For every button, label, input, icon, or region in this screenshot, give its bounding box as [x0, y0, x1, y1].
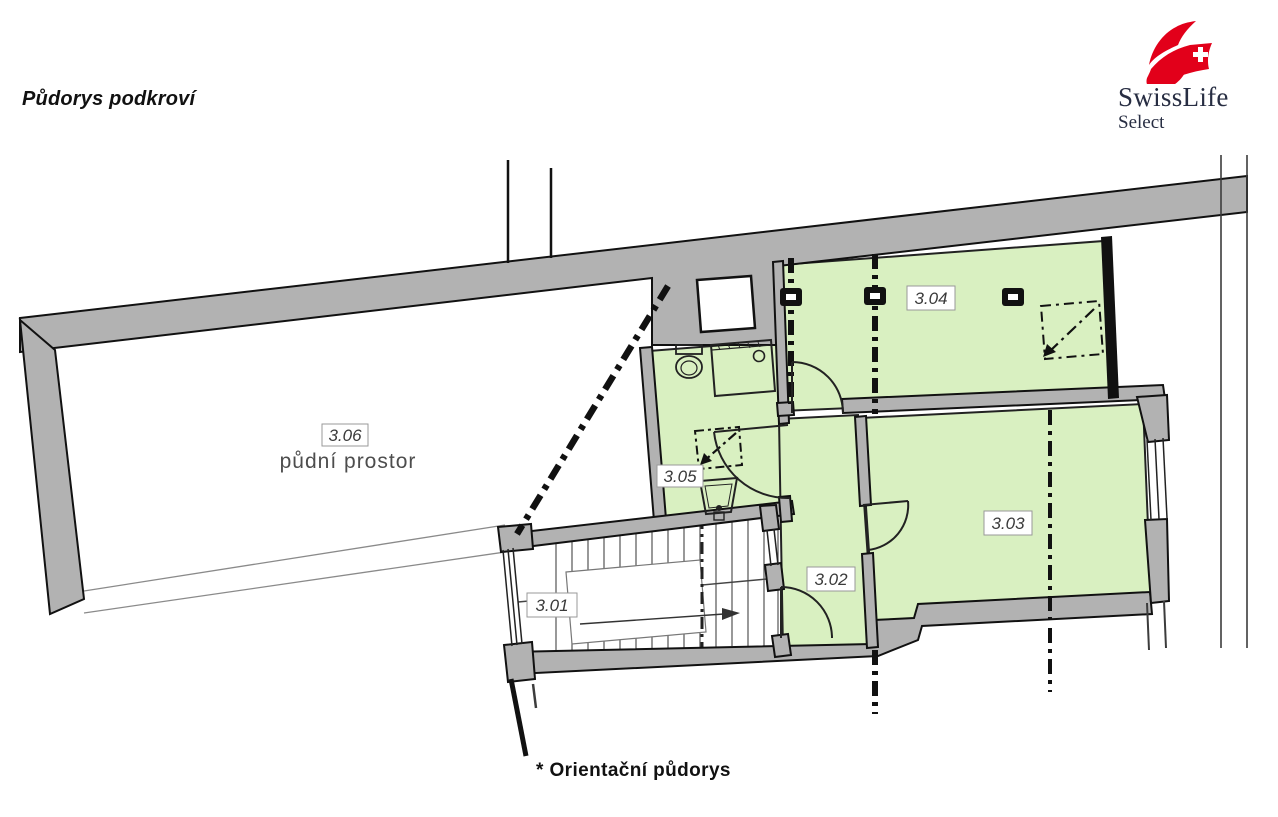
room-label-3.01: 3.01	[527, 593, 577, 617]
column-marker	[780, 288, 802, 306]
room-3.04-area	[778, 241, 1110, 411]
attic-knee-wall-lines	[84, 525, 512, 613]
orientation-note: * Orientační půdorys	[536, 760, 731, 782]
window-staircase-right-sidelight	[767, 529, 778, 566]
wall-staircase-left-top	[498, 524, 533, 552]
stair-direction-arrow-icon	[722, 608, 740, 620]
room-label-3.05: 3.05	[657, 465, 703, 487]
wall-staircase-left-bottom	[504, 642, 535, 682]
wall-left-exterior	[20, 320, 84, 614]
chimney-flue-lines	[508, 160, 551, 263]
wall-bathroom-right-lower	[779, 496, 792, 522]
wall-below-staircase-line	[511, 679, 526, 756]
chimney	[697, 276, 755, 332]
window-staircase-left	[503, 548, 522, 646]
svg-text:3.06: 3.06	[328, 426, 362, 445]
column-marker	[1002, 288, 1024, 306]
window-303-right	[1147, 438, 1167, 520]
room-label-3.02: 3.02	[807, 567, 855, 591]
svg-text:3.05: 3.05	[663, 467, 697, 486]
wall-staircase-top	[506, 501, 794, 549]
stair-landing	[566, 560, 706, 644]
room-label-3.06: 3.06	[322, 424, 368, 446]
wall-staircase-right-a	[760, 505, 779, 531]
svg-text:3.02: 3.02	[814, 570, 848, 589]
floorplan-drawing: 3.01 3.02 3.03 3.04 3.05 3.06 pů	[0, 0, 1278, 817]
attic-space-name: půdní prostor	[280, 450, 417, 473]
column-marker	[864, 287, 886, 305]
floorplan-page: Půdorys podkroví SwissLife Select	[0, 0, 1278, 817]
svg-text:3.03: 3.03	[991, 514, 1025, 533]
svg-text:3.04: 3.04	[914, 289, 947, 308]
room-label-3.04: 3.04	[907, 286, 955, 310]
svg-text:3.01: 3.01	[535, 596, 568, 615]
room-3.05-area	[649, 341, 788, 519]
room-label-3.03: 3.03	[984, 511, 1032, 535]
